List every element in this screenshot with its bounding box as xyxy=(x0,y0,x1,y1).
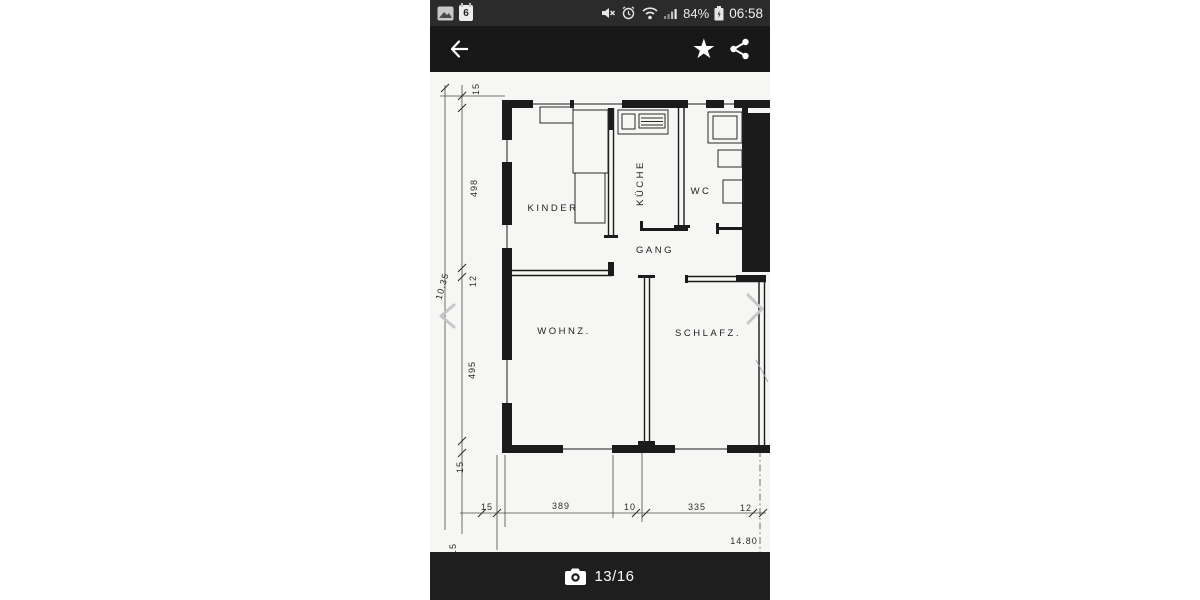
star-icon: ★ xyxy=(692,36,716,63)
dim-total-width: 14.80 xyxy=(730,536,758,546)
dimension-labels: 15 498 12 495 15 10.35 15 389 10 335 12 … xyxy=(434,83,758,552)
floor-plan-image: 15 498 12 495 15 10.35 15 389 10 335 12 … xyxy=(430,72,770,552)
image-viewer-toolbar: ★ xyxy=(430,26,770,72)
dim-left-12: 12 xyxy=(468,275,478,287)
wifi-icon xyxy=(641,6,659,20)
calendar-day: 6 xyxy=(463,8,469,19)
room-label-kueche: KÜCHE xyxy=(635,160,646,206)
dim-bottom-12: 12 xyxy=(740,503,752,513)
image-viewer[interactable]: 15 498 12 495 15 10.35 15 389 10 335 12 … xyxy=(430,72,770,552)
dim-left-495: 495 xyxy=(467,361,477,379)
chevron-left-icon[interactable] xyxy=(441,305,454,327)
dark-shaft xyxy=(748,113,770,272)
room-label-wc: WC xyxy=(691,186,712,197)
photo-counter-bar: 13/16 xyxy=(430,552,770,600)
dim-left-15-bottom: 15 xyxy=(455,461,465,473)
dim-bottom-335: 335 xyxy=(688,502,706,512)
dim-left-498: 498 xyxy=(469,179,479,197)
back-button[interactable] xyxy=(442,31,478,67)
share-icon xyxy=(728,37,752,61)
status-bar: 6 84% 06:58 xyxy=(430,0,770,26)
mute-icon xyxy=(601,6,616,20)
interior-walls xyxy=(505,108,766,445)
dim-left-15-top: 15 xyxy=(471,83,481,95)
room-label-schlafz: SCHLAFZ. xyxy=(675,328,741,339)
photo-icon xyxy=(437,6,454,21)
dim-bottom-389: 389 xyxy=(552,501,570,511)
clock-text: 06:58 xyxy=(729,6,763,21)
signal-icon xyxy=(664,6,678,20)
dim-cut-15: 15 xyxy=(448,543,458,552)
room-label-wohnz: WOHNZ. xyxy=(537,326,591,337)
camera-icon xyxy=(565,568,586,585)
calendar-icon: 6 xyxy=(459,5,473,21)
battery-percent: 84% xyxy=(683,7,709,20)
room-labels: KINDER KÜCHE WC GANG WOHNZ. SCHLAFZ. xyxy=(528,160,741,339)
room-label-kinder: KINDER xyxy=(528,203,579,214)
phone-screenshot: 6 84% 06:58 xyxy=(430,0,770,600)
dim-total-height: 10.35 xyxy=(434,272,451,301)
favorite-button[interactable]: ★ xyxy=(686,30,722,69)
photo-counter: 13/16 xyxy=(594,568,634,585)
back-arrow-icon xyxy=(448,37,472,61)
battery-charging-icon xyxy=(714,6,724,21)
share-button[interactable] xyxy=(722,31,758,67)
dim-bottom-15: 15 xyxy=(481,502,493,512)
room-label-gang: GANG xyxy=(636,245,674,256)
alarm-icon xyxy=(621,6,636,20)
dim-bottom-10: 10 xyxy=(624,502,636,512)
chevron-right-icon[interactable] xyxy=(748,295,762,323)
